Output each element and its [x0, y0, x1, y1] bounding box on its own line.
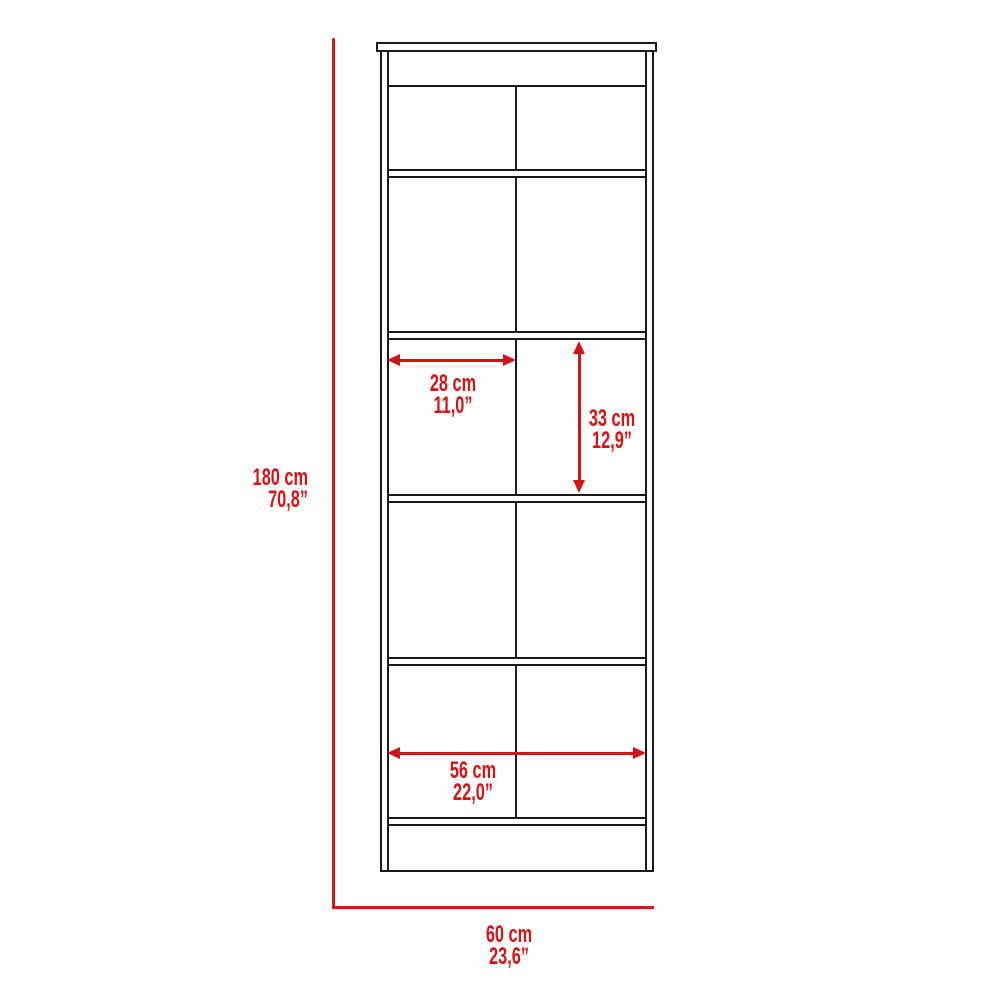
cubby-width-label: 28 cm 11,0” [405, 373, 500, 417]
shelf-line [389, 817, 645, 819]
inner-width-label: 56 cm 22,0” [425, 760, 520, 804]
shelf-line [389, 331, 645, 333]
overall-height-inch: 70,8” [213, 489, 308, 511]
overall-width-label: 60 cm 23,6” [461, 924, 556, 968]
center-divider [515, 87, 517, 169]
arrowhead-right-icon [633, 747, 646, 759]
furniture-dimension-diagram: 180 cm 70,8” 60 cm 23,6” 28 cm 11,0” 33 … [0, 0, 1000, 1000]
arrowhead-left-icon [387, 354, 400, 366]
arrowhead-right-icon [503, 354, 516, 366]
shelf-line [389, 338, 645, 340]
center-divider [515, 178, 517, 331]
cubby-height-inch: 12,9” [564, 430, 659, 452]
cubby-width-inch: 11,0” [405, 395, 500, 417]
width-dimension-line [332, 906, 654, 909]
cabinet-top-rail-line [389, 85, 645, 87]
center-divider [515, 503, 517, 657]
shelf-line [389, 169, 645, 171]
cubby-height-label: 33 cm 12,9” [564, 408, 659, 452]
inner-width-arrow [387, 747, 646, 759]
cabinet-right-side-panel [645, 52, 654, 870]
overall-height-label: 180 cm 70,8” [213, 467, 308, 511]
height-dimension-line [332, 38, 335, 906]
shelf-line [389, 494, 645, 496]
cubby-width-arrow [387, 354, 516, 366]
shelf-line [389, 824, 645, 826]
overall-width-inch: 23,6” [461, 946, 556, 968]
shelf-line [389, 657, 645, 659]
arrowhead-down-icon [573, 480, 585, 493]
arrowhead-left-icon [387, 747, 400, 759]
shelf-line [389, 501, 645, 503]
shelf-line [389, 664, 645, 666]
shelf-line [389, 176, 645, 178]
arrowhead-up-icon [573, 341, 585, 354]
inner-width-inch: 22,0” [425, 782, 520, 804]
cabinet-bottom-edge [380, 870, 654, 872]
cabinet-top-board [376, 42, 657, 52]
